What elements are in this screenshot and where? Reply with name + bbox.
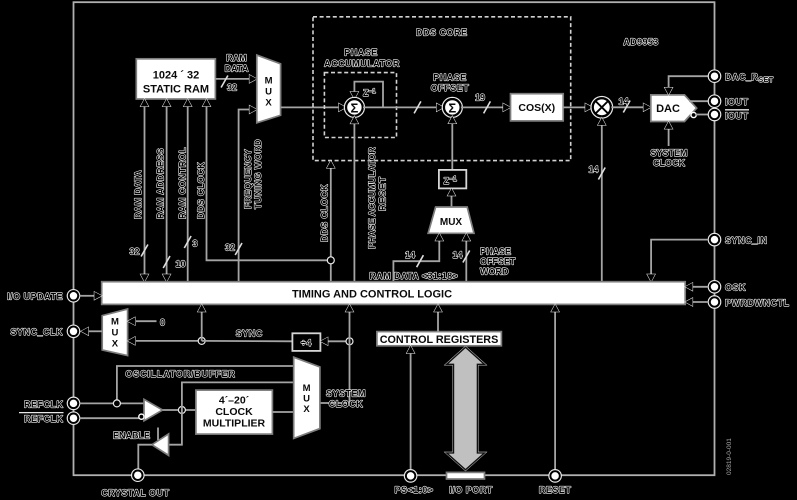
svg-text:OSCILLATOR/BUFFER: OSCILLATOR/BUFFER	[125, 369, 235, 379]
svg-text:RESET: RESET	[378, 176, 388, 211]
svg-text:U: U	[265, 87, 272, 98]
svg-text:14: 14	[618, 97, 628, 107]
svg-text:32: 32	[225, 243, 235, 253]
svg-text:RAM DATA: RAM DATA	[133, 170, 143, 219]
svg-text:IOUT: IOUT	[725, 111, 749, 121]
svg-text:IOUT: IOUT	[725, 97, 749, 107]
svg-text:REFCLK: REFCLK	[24, 414, 64, 424]
svg-text:TIMING AND CONTROL LOGIC: TIMING AND CONTROL LOGIC	[292, 289, 452, 301]
svg-text:REFCLK: REFCLK	[24, 399, 64, 409]
svg-text:PHASE: PHASE	[480, 247, 511, 257]
svg-text:DATA: DATA	[225, 64, 249, 74]
svg-text:Σ: Σ	[448, 100, 456, 115]
svg-text:DDS CLOCK: DDS CLOCK	[320, 184, 330, 242]
svg-text:÷4: ÷4	[301, 338, 312, 348]
svg-text:14: 14	[588, 165, 598, 175]
svg-text:X: X	[265, 98, 272, 109]
svg-text:10: 10	[176, 259, 186, 269]
svg-text:32: 32	[227, 83, 237, 93]
svg-text:SYNC: SYNC	[236, 329, 263, 339]
svg-text:19: 19	[475, 93, 485, 103]
svg-text:SYSTEM: SYSTEM	[650, 148, 687, 158]
svg-text:14: 14	[452, 250, 462, 260]
svg-text:PHASE: PHASE	[433, 73, 467, 83]
svg-text:CONTROL REGISTERS: CONTROL REGISTERS	[380, 334, 499, 346]
svg-text:CRYSTAL OUT: CRYSTAL OUT	[101, 488, 169, 498]
svg-text:02819-0-001: 02819-0-001	[726, 438, 733, 475]
svg-text:RESET: RESET	[539, 485, 572, 495]
svg-text:PHASE: PHASE	[344, 48, 378, 58]
svg-text:0: 0	[160, 318, 165, 328]
svg-text:14: 14	[405, 250, 415, 260]
svg-text:COS(X): COS(X)	[518, 102, 555, 114]
svg-text:SYSTEM: SYSTEM	[326, 389, 366, 399]
svg-text:3: 3	[193, 239, 198, 249]
svg-text:I/O PORT: I/O PORT	[449, 485, 493, 495]
svg-text:4´–20´: 4´–20´	[219, 395, 250, 407]
svg-text:RAM CONTROL: RAM CONTROL	[178, 147, 188, 219]
svg-text:U: U	[303, 394, 310, 405]
svg-text:OFFSET: OFFSET	[480, 257, 516, 267]
svg-text:X: X	[303, 404, 310, 415]
svg-text:FREQUENCY: FREQUENCY	[243, 149, 253, 209]
svg-text:M: M	[303, 383, 311, 394]
svg-text:STATIC RAM: STATIC RAM	[143, 84, 209, 96]
svg-text:DAC: DAC	[656, 103, 680, 115]
svg-text:RAM: RAM	[226, 53, 247, 63]
svg-text:DDS CORE: DDS CORE	[416, 28, 468, 38]
svg-text:AD9953: AD9953	[623, 37, 658, 47]
svg-text:U: U	[111, 328, 118, 339]
svg-text:PHASE ACCUMULATOR: PHASE ACCUMULATOR	[367, 147, 377, 249]
svg-text:ENABLE: ENABLE	[113, 431, 150, 441]
svg-text:M: M	[111, 317, 119, 328]
svg-text:PWRDWNCTL: PWRDWNCTL	[725, 298, 790, 308]
svg-text:WORD: WORD	[480, 267, 509, 277]
svg-text:SYNC_CLK: SYNC_CLK	[10, 327, 63, 337]
svg-text:OSK: OSK	[725, 283, 746, 293]
svg-text:RAM DATA <31:18>: RAM DATA <31:18>	[369, 271, 458, 281]
svg-text:SYNC_IN: SYNC_IN	[725, 236, 768, 246]
svg-text:X: X	[112, 339, 119, 350]
svg-text:MULTIPLIER: MULTIPLIER	[203, 418, 266, 430]
svg-text:ACCUMULATOR: ACCUMULATOR	[324, 59, 400, 69]
svg-text:DDS CLOCK: DDS CLOCK	[196, 162, 206, 219]
svg-text:32: 32	[129, 247, 139, 257]
svg-text:1024 ´ 32: 1024 ´ 32	[153, 70, 199, 82]
svg-text:PS<1:0>: PS<1:0>	[394, 485, 433, 495]
svg-text:CLOCK: CLOCK	[653, 158, 685, 168]
svg-text:TUNING WORD: TUNING WORD	[253, 139, 263, 209]
svg-text:MUX: MUX	[440, 217, 463, 228]
svg-text:CLOCK: CLOCK	[329, 399, 364, 409]
svg-text:I/O UPDATE: I/O UPDATE	[7, 292, 63, 302]
svg-text:M: M	[265, 76, 273, 87]
svg-text:RAM ADDRESS: RAM ADDRESS	[156, 148, 166, 219]
svg-text:OFFSET: OFFSET	[431, 83, 470, 93]
svg-text:Σ: Σ	[350, 100, 358, 115]
svg-text:CLOCK: CLOCK	[215, 406, 253, 418]
